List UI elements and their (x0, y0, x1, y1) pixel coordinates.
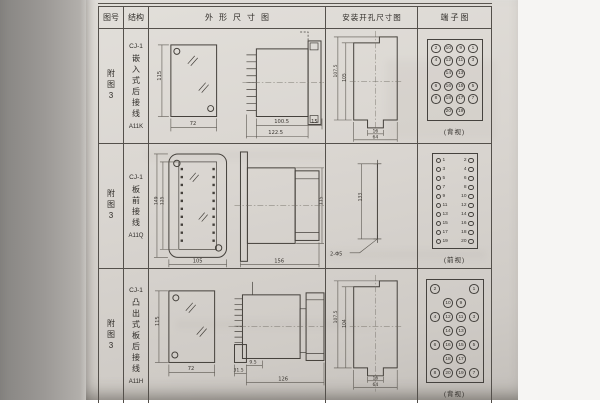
cell-outline-row3: 115 72 9.5 31.5 126 (149, 269, 326, 403)
terminal-blank (469, 326, 479, 336)
cell-terminal-row1: 21091 412113 1413 616155 818177 2019 (背视… (418, 29, 491, 144)
dimension-lines (350, 164, 378, 253)
terminal-hole (436, 185, 442, 191)
outline-drawing-a11h: 115 72 9.5 31.5 126 (149, 269, 325, 402)
terminal-number: 12 (461, 203, 466, 208)
cell-mount-row2: 133 2-Φ5 (326, 144, 418, 269)
terminal-hole (436, 221, 442, 227)
terminal-blank (443, 284, 453, 294)
terminal-pin: 20 (443, 368, 453, 378)
cell-fig-row3: 附图3 (99, 269, 124, 403)
model-name: CJ-1 (129, 174, 143, 181)
structure-name: 凸出式板后接线 (131, 298, 142, 375)
fig-number: 附图3 (106, 69, 117, 103)
terminal-pin: 19 (456, 368, 466, 378)
dim-label: 115 (155, 316, 161, 326)
structure-name: 嵌入式后接线 (131, 54, 142, 120)
hatch-marks (186, 303, 207, 337)
terminal-number: 20 (461, 239, 466, 244)
photo-background: 图号 结构 外形尺寸图 安装开孔尺寸图 端子图 附图3 CJ-1 嵌入式后接线 … (0, 0, 600, 400)
model-code: A11Q (129, 233, 144, 239)
terminal-number: 2 (464, 158, 467, 163)
terminal-pin: 17 (456, 354, 466, 364)
terminal-pin: 1 (468, 44, 478, 54)
terminal-hole (436, 158, 442, 164)
dim-label: 156 (274, 258, 284, 264)
terminal-number: 17 (443, 230, 448, 235)
dim-label: 115 (318, 196, 324, 205)
terminal-pin: 14 (444, 69, 454, 79)
dim-label: 64 (372, 382, 378, 388)
terminal-box-back-view: 21 109 412113 1413 616155 1817 820197 (426, 279, 484, 383)
terminal-number: 13 (443, 212, 448, 217)
terminal-number: 6 (464, 176, 467, 181)
terminal-blank (468, 69, 478, 79)
terminal-pin: 10 (443, 298, 453, 308)
terminal-blank (430, 298, 440, 308)
terminal-hole (436, 203, 442, 209)
header-terminal: 端子图 (418, 7, 491, 29)
terminal-pin: 2 (431, 44, 441, 54)
dimension-lines (334, 37, 397, 142)
terminal-pin: 9 (456, 44, 466, 54)
cell-mount-row1: 107.5 105 16 64 (326, 29, 418, 144)
hatch-marks (188, 56, 209, 93)
terminal-number: 1 (443, 158, 446, 163)
side-view (240, 152, 319, 261)
terminal-hole (468, 212, 474, 218)
cell-struct-row3: CJ-1 凸出式板后接线 A11H (124, 269, 149, 403)
model-name: CJ-1 (129, 43, 143, 50)
terminal-pin: 7 (469, 368, 479, 378)
view-label: (前视) (418, 254, 491, 264)
dim-label: 149 (153, 196, 159, 205)
terminal-pin: 18 (443, 354, 453, 364)
terminal-blank (469, 298, 479, 308)
terminal-hole (468, 167, 474, 173)
terminal-pin: 16 (444, 82, 454, 92)
hole-centers (373, 160, 381, 243)
terminal-number: 11 (443, 203, 448, 208)
dim-label: 2-Φ5 (330, 251, 342, 257)
terminal-pin: 19 (456, 107, 466, 117)
terminal-number: 8 (464, 185, 467, 190)
terminal-pin: 16 (443, 340, 453, 350)
fig-number: 附图3 (106, 189, 117, 223)
terminal-number: 4 (464, 167, 467, 172)
dim-label: 104 (341, 319, 347, 328)
terminal-blank (469, 354, 479, 364)
terminal-number: 15 (443, 221, 448, 226)
dimension-lines (334, 281, 397, 390)
mount-hole-drawing-a11k: 107.5 105 16 64 (326, 29, 417, 143)
terminal-hole (436, 239, 442, 245)
terminal-number: 10 (461, 194, 466, 199)
dim-label: 16 (372, 375, 378, 381)
cell-terminal-row3: 21 109 412113 1413 616155 1817 820197 (背… (418, 269, 491, 403)
dim-label: 72 (190, 121, 197, 127)
spec-table: 图号 结构 外形尺寸图 安装开孔尺寸图 端子图 附图3 CJ-1 嵌入式后接线 … (98, 6, 492, 403)
terminal-pin: 5 (469, 340, 479, 350)
header-mount-label: 安装开孔尺寸图 (341, 12, 402, 23)
terminal-number: 14 (461, 212, 466, 217)
side-view (246, 32, 321, 124)
cell-fig-row2: 附图3 (99, 144, 124, 269)
dim-label: 122.5 (268, 130, 283, 136)
model-code: A11K (129, 124, 143, 130)
terminal-hole (468, 239, 474, 245)
terminal-pin: 3 (468, 56, 478, 66)
model-name: CJ-1 (129, 287, 143, 294)
header-structure: 结构 (124, 7, 149, 29)
terminal-pin: 13 (456, 326, 466, 336)
terminal-pin: 15 (456, 82, 466, 92)
hatch-marks (190, 173, 208, 222)
dim-label: 107.5 (333, 64, 339, 77)
terminal-hole (468, 194, 474, 200)
terminal-pin: 8 (431, 94, 441, 104)
terminal-number: 19 (443, 239, 448, 244)
terminal-hole (436, 230, 442, 236)
cell-fig-row1: 附图3 (99, 29, 124, 144)
terminal-pin: 15 (456, 340, 466, 350)
terminal-hole (468, 221, 474, 227)
terminal-pin: 17 (456, 94, 466, 104)
fig-number: 附图3 (106, 319, 117, 353)
dim-label: 107.5 (333, 310, 339, 323)
terminal-number: 18 (461, 230, 466, 235)
front-view (169, 291, 215, 363)
dim-label: 31.5 (234, 367, 244, 373)
terminal-pin: 2 (430, 284, 440, 294)
header-outline-label: 外形尺寸图 (199, 12, 275, 23)
dim-label: 133 (358, 193, 364, 202)
terminal-hole (468, 230, 474, 236)
terminal-pin: 8 (430, 368, 440, 378)
view-label: (背视) (418, 126, 491, 136)
terminal-hole (436, 167, 442, 173)
terminal-pin: 4 (431, 56, 441, 66)
terminal-pin: 11 (456, 312, 466, 322)
terminal-blank (456, 284, 466, 294)
terminal-hole (468, 185, 474, 191)
terminal-hole (436, 194, 442, 200)
terminal-box-back-view: 21091 412113 1413 616155 818177 2019 (427, 39, 483, 121)
header-fig-number: 图号 (99, 7, 124, 29)
terminal-pin: 1 (469, 284, 479, 294)
cell-outline-row2: 149 125 105 156 115 (149, 144, 326, 269)
dim-label: 72 (188, 366, 195, 372)
mount-hole-drawing-a11h: 107.5 104 16 64 (326, 269, 417, 402)
terminal-number: 5 (443, 176, 446, 181)
terminal-pin: 18 (444, 94, 454, 104)
outline-drawing-a11q: 149 125 105 156 115 (149, 144, 325, 268)
terminal-pin: 11 (456, 56, 466, 66)
view-label: (背视) (418, 388, 491, 398)
terminal-number: 9 (443, 194, 446, 199)
terminal-number: 7 (443, 185, 446, 190)
cell-outline-row1: 115 72 100.5 122.5 15 (149, 29, 326, 144)
terminal-blank (468, 107, 478, 117)
terminal-pin: 10 (444, 44, 454, 54)
header-mount-dims: 安装开孔尺寸图 (326, 7, 418, 29)
terminal-pin: 20 (444, 107, 454, 117)
terminal-blank (430, 326, 440, 336)
dim-label: 100.5 (274, 119, 289, 125)
terminal-pin: 7 (468, 94, 478, 104)
terminal-pin: 6 (431, 82, 441, 92)
header-outline-dims: 外形尺寸图 (149, 7, 326, 29)
cell-struct-row1: CJ-1 嵌入式后接线 A11K (124, 29, 149, 144)
terminal-hole (468, 158, 474, 164)
dim-label: 125 (159, 196, 165, 205)
terminal-box-front-view: 12 34 56 78 910 1112 1314 1516 1718 1920 (432, 153, 478, 249)
header-struct-label: 结构 (128, 12, 144, 23)
header-terminal-label: 端子图 (439, 12, 471, 23)
terminal-pin: 13 (456, 69, 466, 79)
terminal-pin: 4 (430, 312, 440, 322)
header-fig-label: 图号 (103, 12, 119, 23)
terminal-pin: 6 (430, 340, 440, 350)
terminal-hole (436, 176, 442, 182)
dim-label: 64 (372, 134, 378, 140)
dim-label: 16 (372, 128, 378, 134)
dim-label: 15 (311, 119, 318, 125)
dim-label: 126 (278, 376, 288, 382)
terminal-blank (431, 107, 441, 117)
mount-hole-drawing-a11q: 133 2-Φ5 (326, 144, 417, 268)
terminal-blank (431, 69, 441, 79)
cell-struct-row2: CJ-1 板前接线 A11Q (124, 144, 149, 269)
structure-name: 板前接线 (131, 185, 142, 229)
outline-drawing-a11k: 115 72 100.5 122.5 15 (149, 29, 325, 143)
side-view (235, 282, 324, 363)
dimension-lines (158, 45, 322, 138)
terminal-pin: 5 (468, 82, 478, 92)
dim-label: 9.5 (249, 359, 256, 365)
front-view (171, 45, 217, 117)
terminal-number: 16 (461, 221, 466, 226)
terminal-pin: 9 (456, 298, 466, 308)
cell-mount-row3: 107.5 104 16 64 (326, 269, 418, 403)
terminal-pin: 3 (469, 312, 479, 322)
dim-label: 105 (341, 73, 347, 82)
terminal-pin: 14 (443, 326, 453, 336)
terminal-hole (468, 203, 474, 209)
terminal-number: 3 (443, 167, 446, 172)
terminal-pin: 12 (443, 312, 453, 322)
dim-label: 105 (193, 258, 203, 264)
terminal-hole (436, 212, 442, 218)
front-view (169, 154, 227, 257)
model-code: A11H (129, 379, 144, 385)
cell-terminal-row2: 12 34 56 78 910 1112 1314 1516 1718 1920… (418, 144, 491, 269)
terminal-pin: 12 (444, 56, 454, 66)
dim-label: 115 (157, 71, 163, 81)
terminal-hole (468, 176, 474, 182)
terminal-blank (430, 354, 440, 364)
document-page: 图号 结构 外形尺寸图 安装开孔尺寸图 端子图 附图3 CJ-1 嵌入式后接线 … (86, 0, 518, 400)
